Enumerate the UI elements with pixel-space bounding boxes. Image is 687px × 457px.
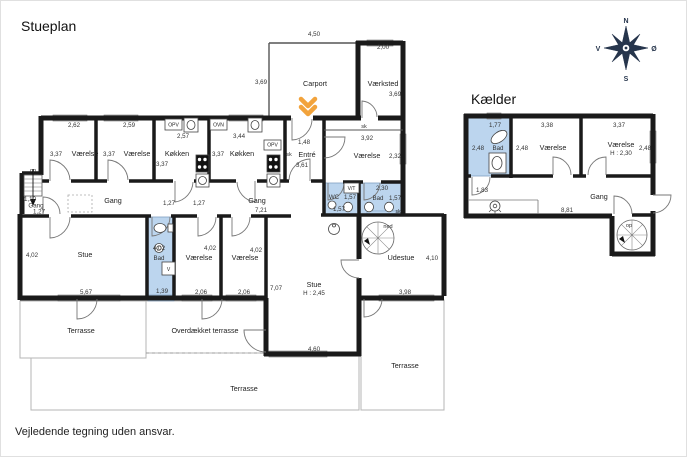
terraces	[20, 300, 444, 410]
kitchen2-closet-label: sk	[286, 152, 292, 158]
basement-title: Kælder	[471, 91, 516, 107]
wc-label: WC	[329, 194, 340, 201]
carport-depth: 3,69	[255, 79, 268, 86]
compass-west-label: V	[596, 46, 601, 53]
workshop-width: 2,00	[377, 44, 390, 51]
bath-east-toilet	[365, 202, 374, 212]
bedroom-nw1-depth: 3,37	[50, 151, 63, 158]
bedroom-nw2-depth: 3,37	[103, 151, 116, 158]
bedroom-e-closet-label: sk	[361, 124, 367, 130]
kitchen1-depth: 3,37	[156, 161, 169, 168]
kitchen2-width: 3,44	[233, 133, 246, 140]
terrace-south	[31, 353, 359, 410]
living-w-depth: 4,02	[26, 252, 39, 259]
bedroom-nw1-label: Værelse	[72, 149, 99, 158]
bath-east-sink	[385, 202, 394, 212]
entrance-arrow-icon	[301, 99, 315, 114]
basement-bedroom2-width: 3,37	[613, 122, 626, 129]
stove-kitchen2	[267, 155, 280, 172]
hall-c-door1: 1,27	[163, 200, 176, 207]
bedroom-s1-width: 2,06	[195, 289, 208, 296]
bedroom-s1-depth: 4,02	[204, 245, 217, 252]
hall-w-dim2: 1,27	[33, 209, 46, 216]
basement-bedroom2-depth: 2,48	[639, 145, 652, 152]
living-main-ceiling: H : 2,45	[303, 290, 325, 297]
bedroom-e-label: Værelse	[354, 151, 381, 160]
basement-stairs-up-label: op	[626, 223, 632, 229]
terrace-west-label: Terrasse	[67, 326, 95, 335]
kitchen1-dishwasher-label: OPV	[168, 123, 179, 129]
hall-e-width: 7,21	[255, 207, 268, 214]
basement-bath-label: Bad	[492, 145, 504, 152]
bath-e-closet-label: sk	[396, 209, 402, 215]
kitchen2-dishwasher-label: OPV	[267, 143, 278, 149]
kitchen2-oven-label: OVN	[213, 123, 224, 129]
bedroom-s1-label: Værelse	[186, 253, 213, 262]
basement-bedroom1-depth: 2,48	[516, 145, 529, 152]
compass-south-label: S	[624, 76, 629, 83]
basement-hall-width: 8,81	[561, 207, 574, 214]
terrace-south-label: Terrasse	[230, 384, 258, 393]
hall-dashed-outline	[68, 195, 92, 212]
terrace-east	[361, 300, 444, 410]
entre-depth: 3,61	[296, 162, 309, 169]
kitchen1-label: Køkken	[165, 149, 189, 158]
compass-north-label: N	[623, 18, 628, 25]
basement-hall-depth: 1,83	[476, 187, 489, 194]
basement-bedroom2-label: Værelse	[608, 140, 635, 149]
stairs-down-label: ned	[383, 224, 392, 230]
living-w-label: Stue	[78, 250, 93, 259]
compass-east-label: Ø	[651, 46, 657, 53]
wc-washer-dryer-label: V/T	[348, 186, 356, 192]
hall-c-door2: 1,27	[193, 200, 206, 207]
living-main-label: Stue	[307, 280, 322, 289]
bath-e-depth: 1,57	[389, 195, 402, 202]
workshop-depth: 3,69	[389, 91, 402, 98]
hall-e-label: Gang	[248, 196, 266, 205]
terrace-east-label: Terrasse	[391, 361, 419, 370]
basement-bedroom1-label: Værelse	[540, 143, 567, 152]
bedroom-nw1-width: 2,62	[68, 122, 81, 129]
wc-depth: 1,57	[333, 206, 346, 213]
bath-center-toilet	[154, 224, 166, 233]
page-title: Stueplan	[21, 18, 76, 34]
bedroom-nw2-label: Værelse	[124, 149, 151, 158]
floorplan-page: N S V Ø Stueplan 2,62 3,37 Værelse 2,59 …	[0, 0, 687, 457]
bedroom-e-width: 3,92	[361, 135, 374, 142]
conservatory-depth: 4,10	[426, 255, 439, 262]
wc-width: 1,57	[344, 194, 357, 201]
bedroom-s2-label: Værelse	[232, 253, 259, 262]
carport-label: Carport	[303, 79, 327, 88]
basement-hall-label: Gang	[590, 192, 608, 201]
workshop-label: Værksted	[368, 79, 399, 88]
bath-c-depth: 4,02	[153, 245, 166, 252]
terrace-covered-label: Overdækket terrasse	[171, 326, 238, 335]
basement-bedroom2-ceiling: H : 2,30	[610, 150, 632, 157]
kitchen2-label: Køkken	[230, 149, 254, 158]
kitchen2-depth: 3,37	[212, 151, 225, 158]
bedroom-s2-width: 2,06	[238, 289, 251, 296]
basement-bath-width: 1,77	[489, 122, 502, 129]
compass-rose: N S V Ø	[596, 18, 658, 83]
floor-plan-svg: N S V Ø Stueplan 2,62 3,37 Værelse 2,59 …	[1, 1, 687, 457]
hall-w-stairs-label: op	[30, 168, 36, 174]
hall-e-depth: 7,07	[270, 285, 283, 292]
living-w-width: 5,67	[80, 289, 93, 296]
basement-bedroom1-width: 3,38	[541, 122, 554, 129]
bath-e-width: 2,30	[376, 185, 389, 192]
entre-label: Entré	[298, 150, 315, 159]
kitchen1-width: 2,57	[177, 133, 190, 140]
bath-c-label: Bad	[153, 255, 165, 262]
bath-c-width: 1,39	[156, 288, 169, 295]
living-main-width: 4,60	[308, 346, 321, 353]
entre-width: 1,48	[298, 139, 311, 146]
conservatory-label: Udestue	[388, 253, 415, 262]
basement-counter-line	[468, 200, 538, 214]
stove-kitchen1	[196, 155, 209, 172]
bedroom-e-depth: 2,32	[389, 153, 402, 160]
disclaimer-text: Vejledende tegning uden ansvar.	[15, 426, 175, 438]
basement-bath-depth: 2,48	[472, 145, 485, 152]
bedroom-nw2-width: 2,59	[123, 122, 136, 129]
hall-c-label: Gang	[104, 196, 122, 205]
conservatory-width: 3,98	[399, 289, 412, 296]
bath-e-label: Bad	[372, 195, 384, 202]
carport-width: 4,50	[308, 31, 321, 38]
